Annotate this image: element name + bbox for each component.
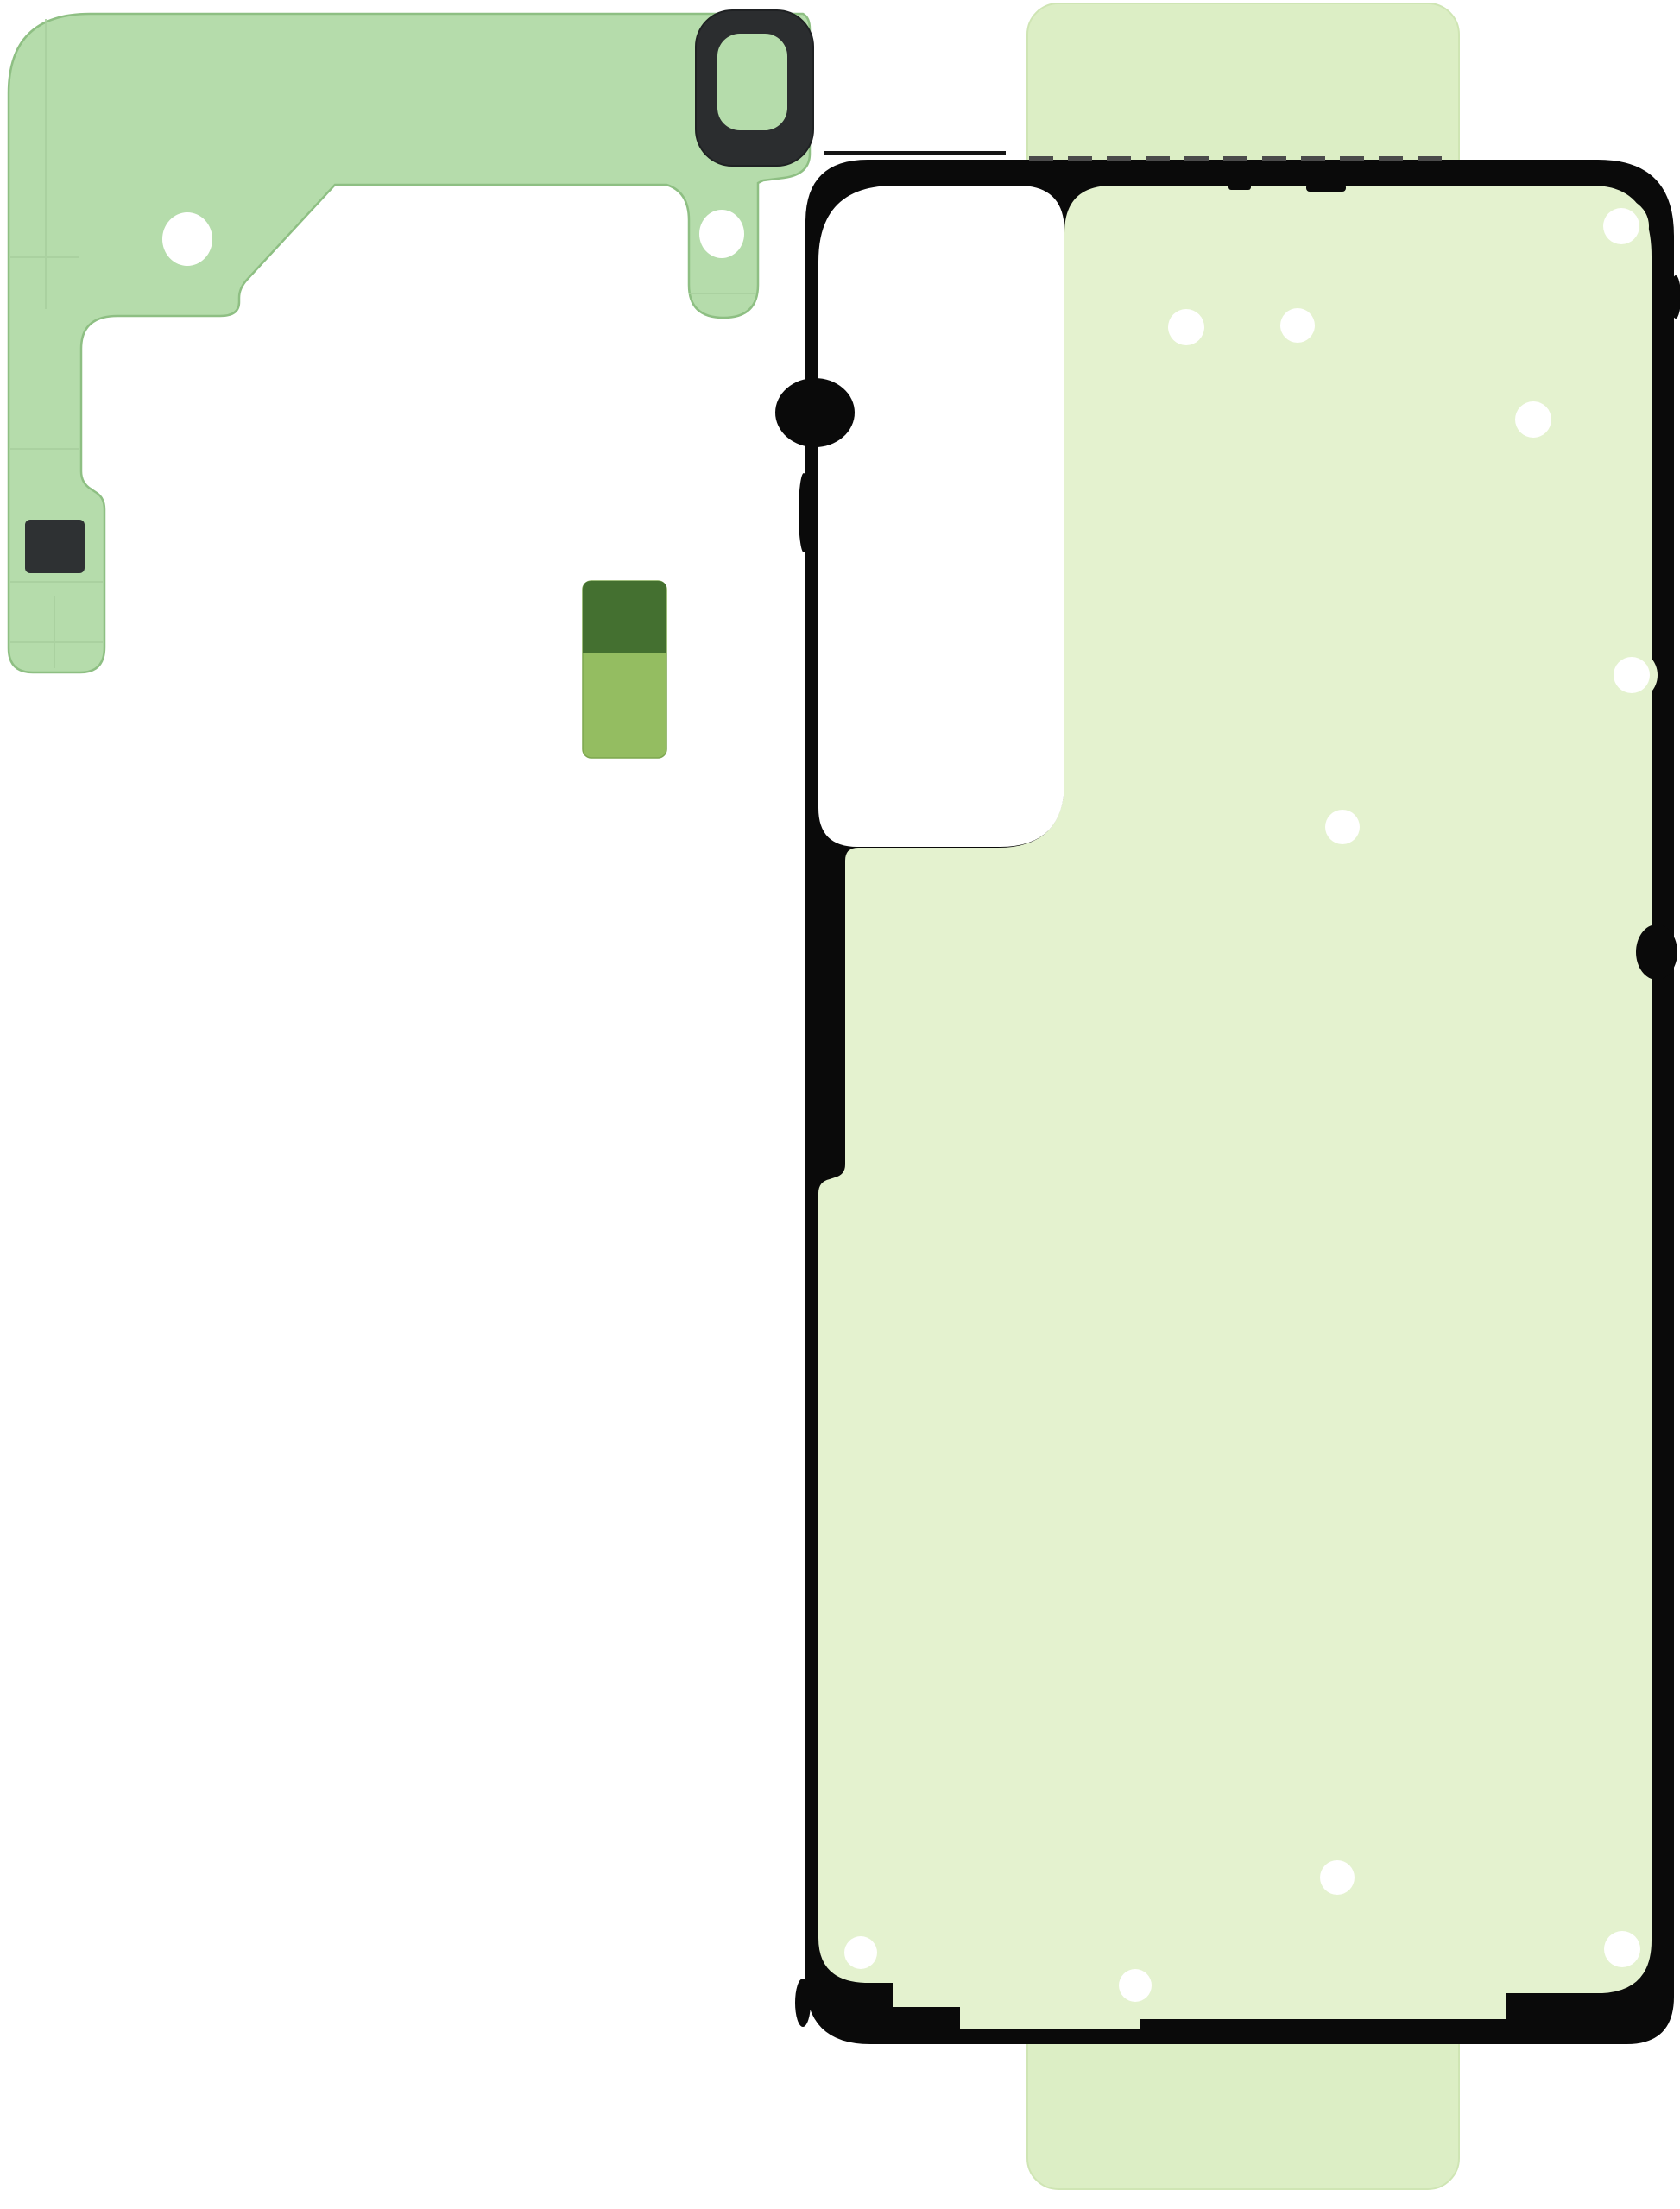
frame-outer-bump-left-mid	[799, 473, 809, 552]
side-button-blob	[775, 378, 855, 447]
product-photo-adhesive-rework-kit	[0, 0, 1680, 2209]
inner-edge-nub-right	[1636, 925, 1677, 980]
bracket-liner-body	[9, 14, 810, 672]
camera-ring-aperture	[717, 34, 787, 130]
camera-module-cutout	[818, 186, 1064, 847]
sticker-top-dark-band	[583, 581, 666, 653]
alignment-dot-bottom-right-corner	[1604, 1931, 1640, 1967]
alignment-dot-right-edge	[1614, 657, 1650, 693]
liner-edge-line-top-left	[824, 151, 1006, 155]
alignment-dot-corner-top-right	[1603, 208, 1639, 244]
back-cover-adhesive	[775, 3, 1680, 2189]
alignment-dot-upper-right	[1515, 401, 1551, 438]
camera-bracket-adhesive	[9, 10, 813, 672]
inner-edge-nub-top-wide	[1306, 184, 1346, 192]
pull-tab-sticker	[583, 581, 666, 758]
liner-perforation-dashes	[1029, 156, 1442, 161]
alignment-dot-center	[1325, 810, 1360, 844]
frame-outer-bump-left-bottom	[795, 1979, 811, 2027]
bracket-screw-hole-right	[699, 210, 744, 258]
inner-edge-nub-top-small	[1228, 184, 1251, 190]
adhesive-kit-svg	[0, 0, 1680, 2209]
alignment-dot-pair-right	[1280, 308, 1315, 343]
alignment-dot-bottom-center	[1320, 1860, 1355, 1895]
alignment-dot-pair-left	[1168, 309, 1204, 345]
bracket-contact-pad	[25, 520, 85, 573]
alignment-dot-bottom-left	[1119, 1969, 1152, 2002]
alignment-dot-bottom-left-corner	[844, 1936, 877, 1969]
bracket-screw-hole-left	[162, 212, 212, 266]
